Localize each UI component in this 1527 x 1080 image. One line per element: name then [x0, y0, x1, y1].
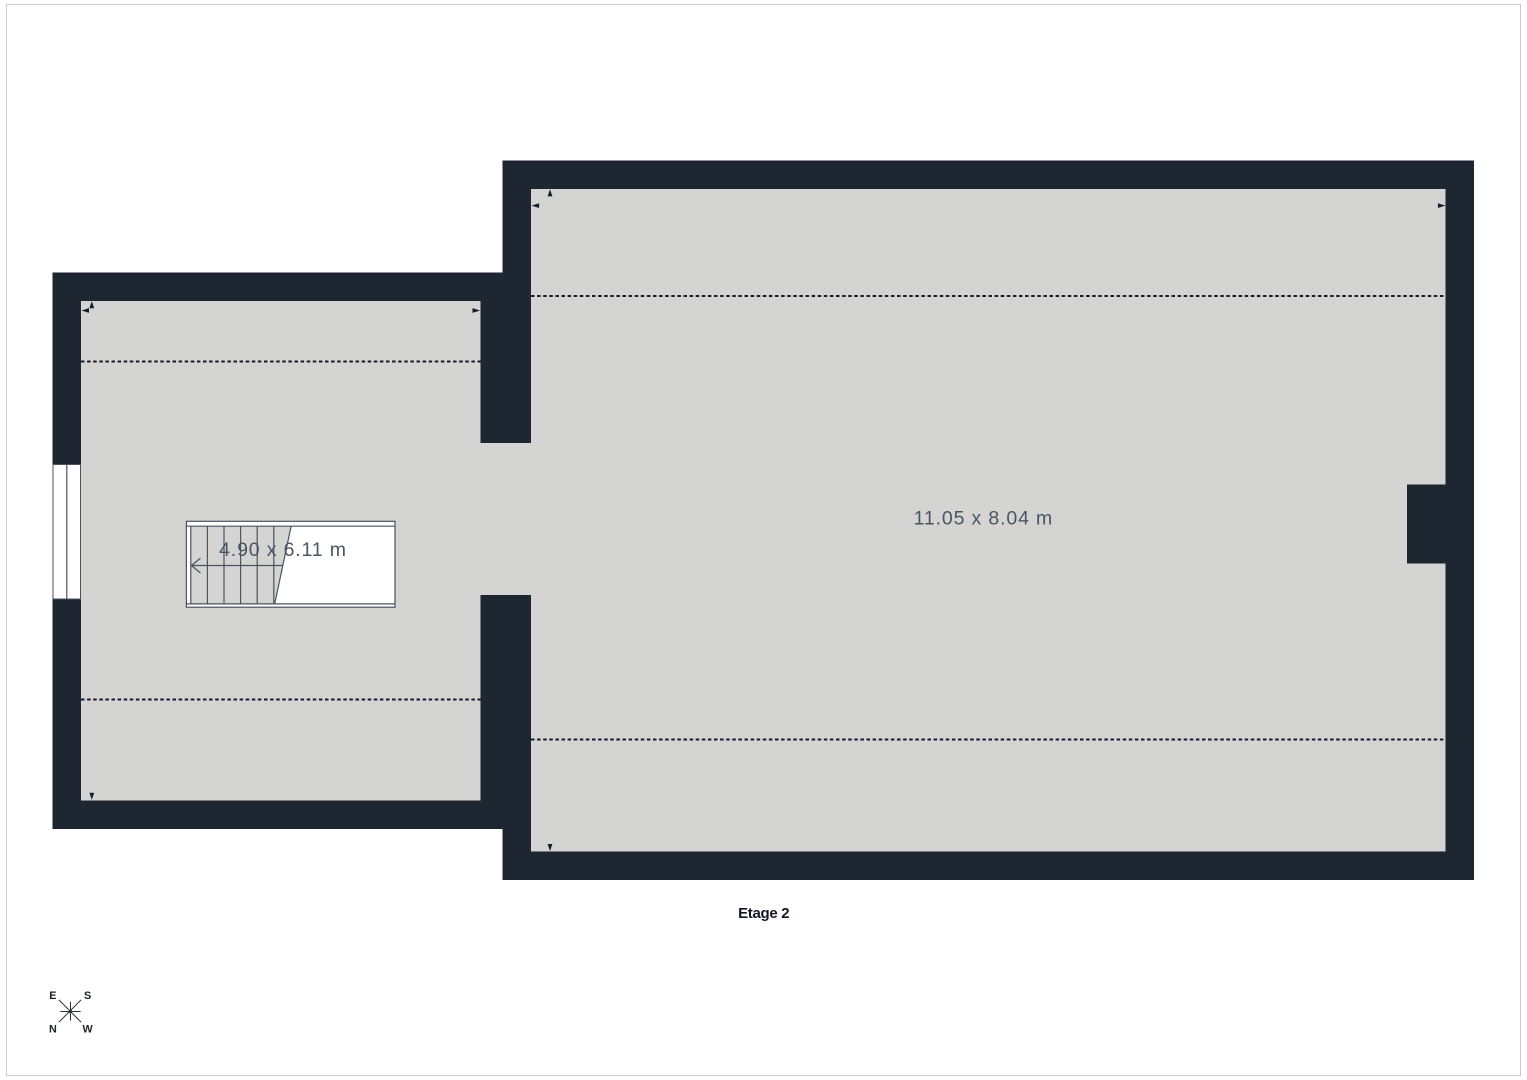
svg-text:Etage 2: Etage 2 [738, 905, 789, 922]
svg-text:11.05 x 8.04 m: 11.05 x 8.04 m [914, 508, 1053, 530]
svg-text:4.90 x 6.11 m: 4.90 x 6.11 m [219, 539, 347, 561]
svg-text:S: S [84, 990, 91, 1002]
svg-text:W: W [82, 1024, 93, 1036]
svg-text:N: N [49, 1024, 57, 1036]
svg-text:E: E [49, 990, 56, 1002]
